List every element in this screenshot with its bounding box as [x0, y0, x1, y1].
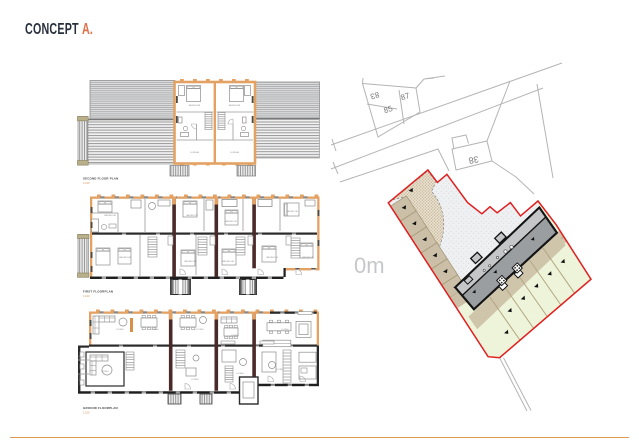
svg-text:87: 87 — [400, 91, 412, 102]
svg-text:BEDROOM: BEDROOM — [302, 257, 313, 259]
svg-text:BEDROOM: BEDROOM — [266, 257, 277, 259]
svg-text:LOUNGE: LOUNGE — [190, 152, 200, 154]
svg-text:1:100: 1:100 — [83, 294, 90, 298]
svg-text:GROUND FLOORPLAN: GROUND FLOORPLAN — [83, 406, 118, 410]
svg-text:1:100: 1:100 — [83, 410, 90, 414]
svg-text:LIVING: LIVING — [196, 329, 203, 331]
svg-text:FIRST FLOORPLAN: FIRST FLOORPLAN — [83, 290, 113, 294]
svg-text:LIVING: LIVING — [116, 329, 123, 331]
svg-text:BEDROOM: BEDROOM — [104, 215, 115, 217]
svg-text:BEDROOM: BEDROOM — [189, 105, 200, 107]
svg-text:LOUNGE: LOUNGE — [230, 152, 240, 154]
svg-text:BEDROOM: BEDROOM — [186, 215, 197, 217]
svg-text:LIVING: LIVING — [191, 379, 198, 381]
svg-text:85: 85 — [383, 104, 395, 115]
svg-text:LIVING: LIVING — [101, 371, 108, 373]
svg-text:BEDROOM: BEDROOM — [286, 211, 297, 213]
svg-text:BEDROOM: BEDROOM — [184, 261, 195, 263]
svg-text:BEDROOM: BEDROOM — [225, 221, 236, 223]
svg-text:CONCEPT A.: CONCEPT A. — [25, 20, 93, 38]
svg-text:83: 83 — [369, 90, 381, 101]
svg-text:BEDROOM: BEDROOM — [119, 257, 130, 259]
svg-text:LIVING: LIVING — [151, 329, 158, 331]
svg-text:0m: 0m — [354, 253, 385, 278]
svg-text:SECOND FLOOR PLAN: SECOND FLOOR PLAN — [83, 177, 118, 181]
svg-text:BEDROOM: BEDROOM — [229, 105, 240, 107]
svg-text:LIVING: LIVING — [231, 335, 238, 337]
svg-text:1:100: 1:100 — [83, 181, 90, 185]
svg-text:LIVING: LIVING — [276, 369, 283, 371]
svg-text:LIVING: LIVING — [236, 373, 243, 375]
svg-text:38: 38 — [468, 154, 480, 166]
svg-text:BEDROOM: BEDROOM — [222, 261, 233, 263]
svg-text:LIVING: LIVING — [281, 329, 288, 331]
